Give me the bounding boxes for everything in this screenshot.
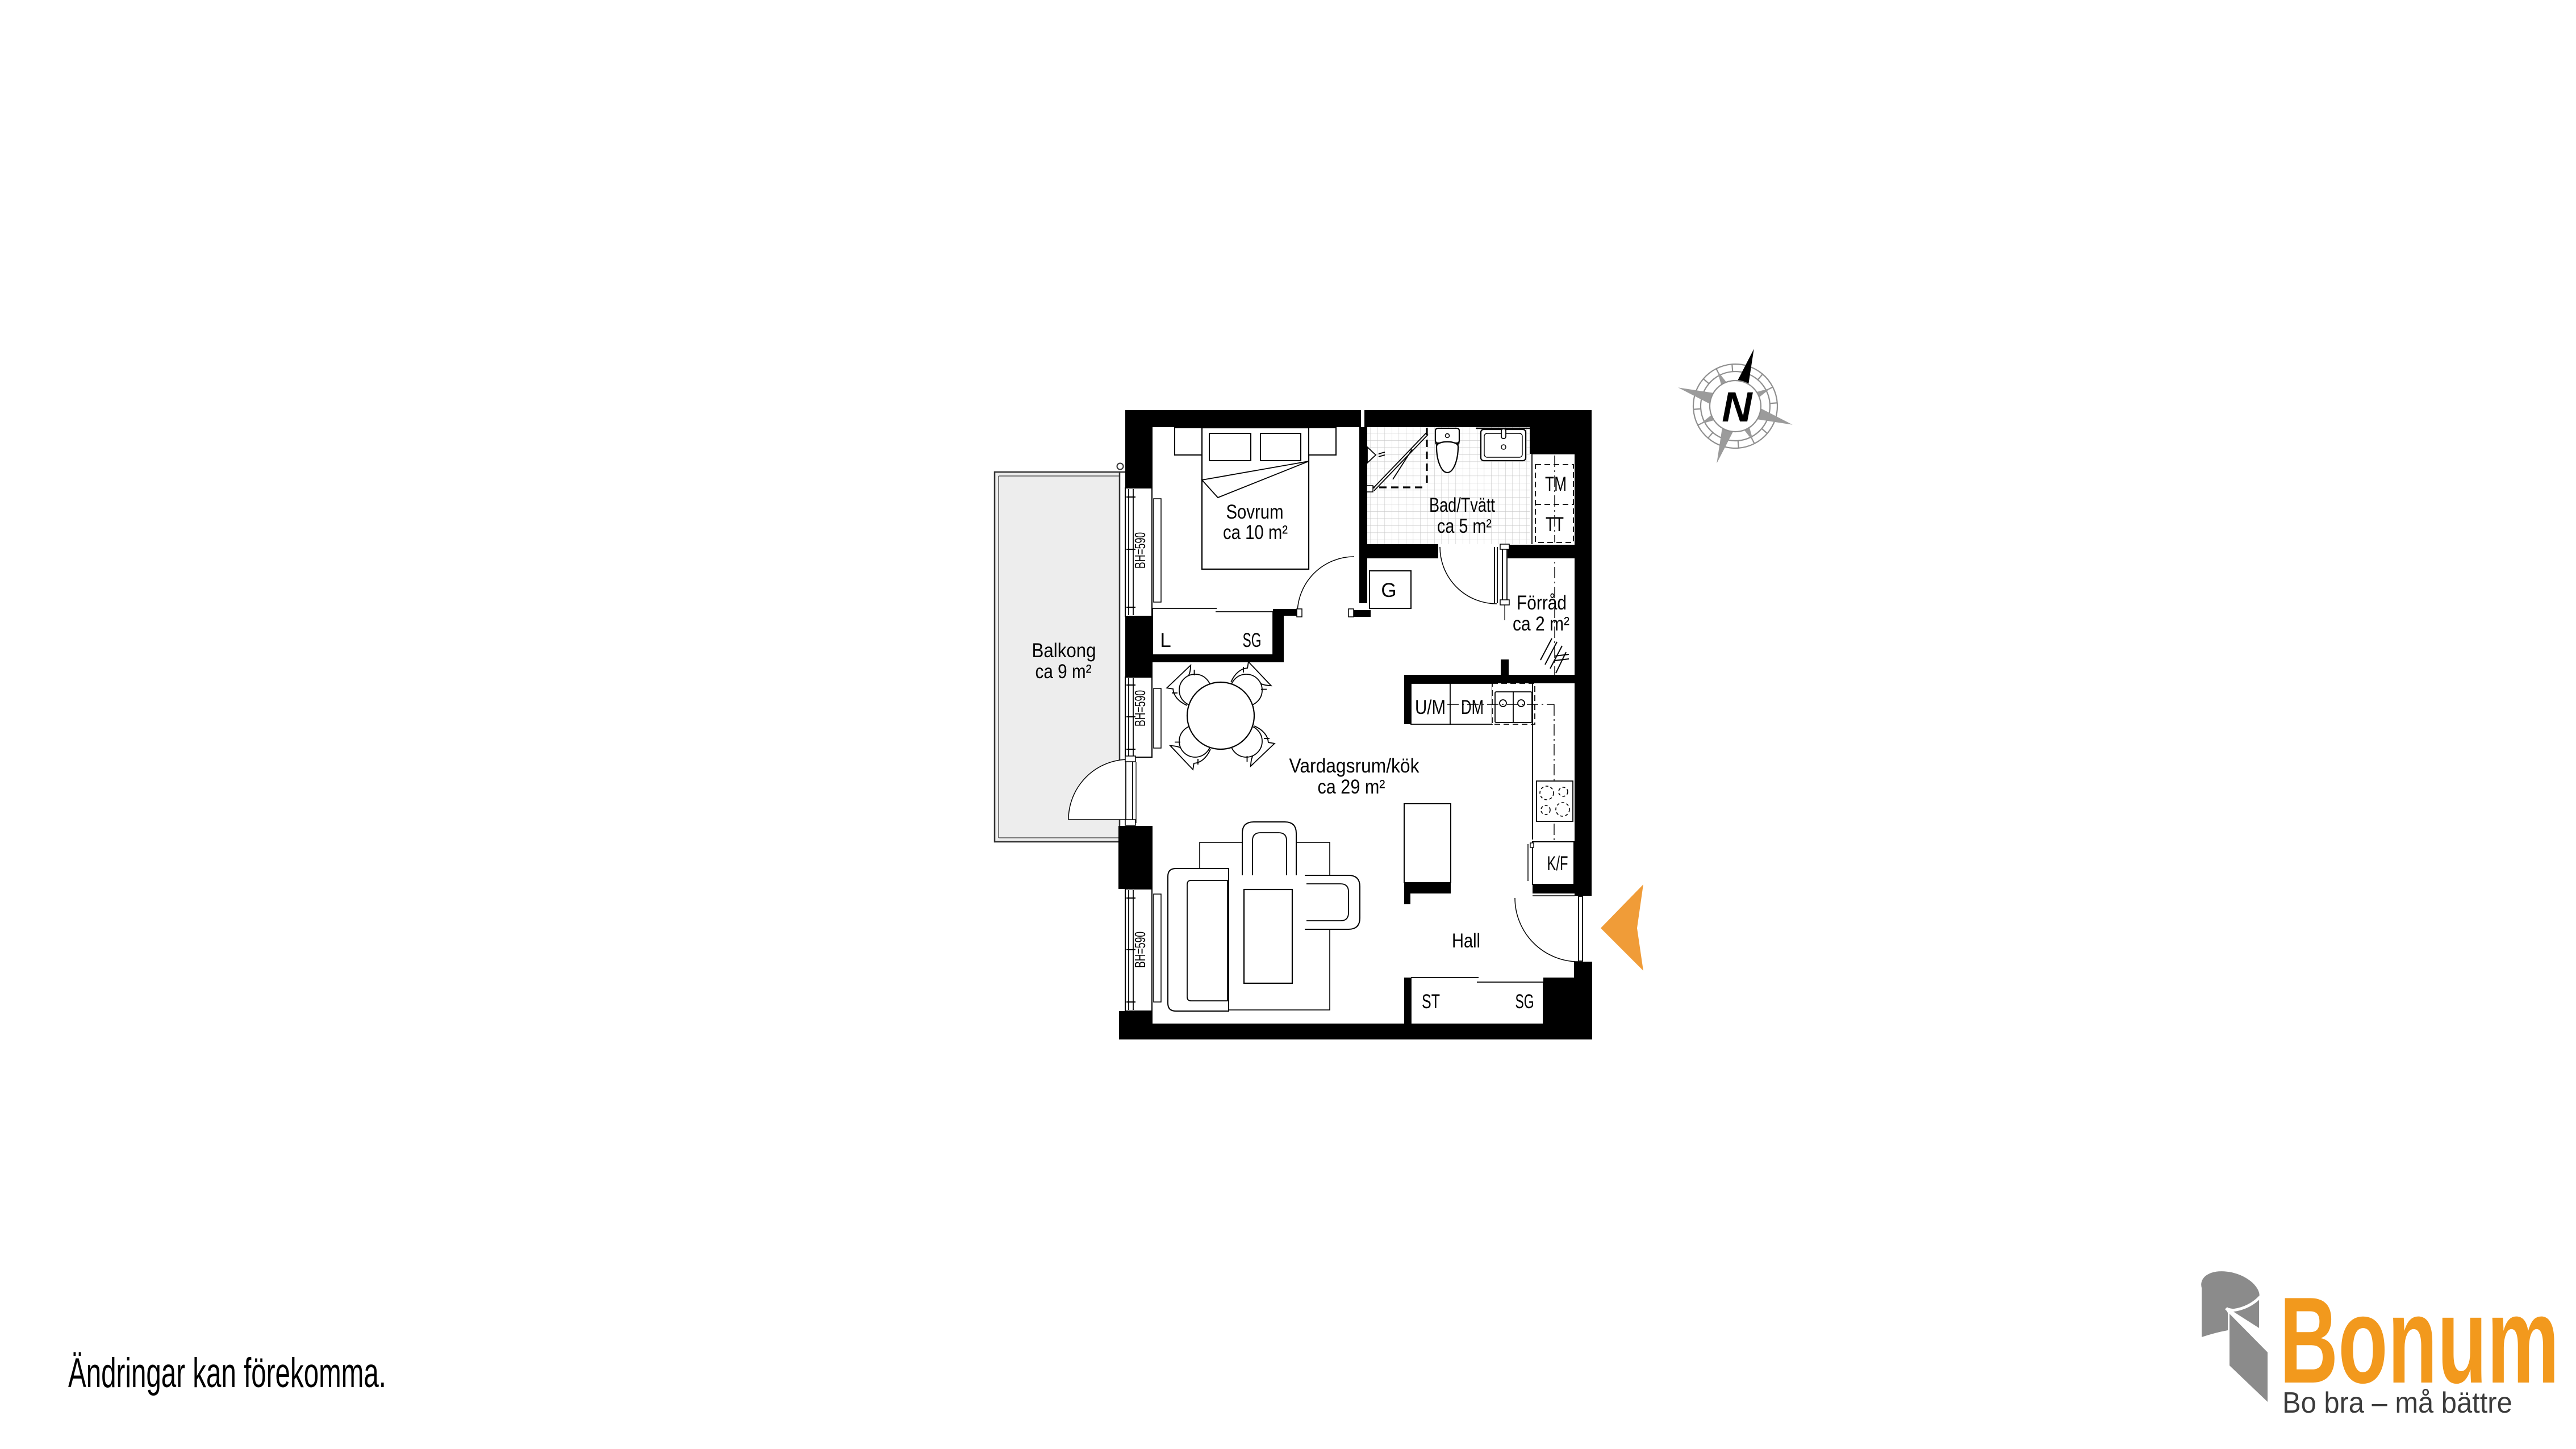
svg-text:BH=590: BH=590 (1132, 532, 1149, 569)
svg-text:Ändringar kan förekomma.: Ändringar kan förekomma. (68, 1350, 386, 1396)
svg-text:Vardagsrum/kök: Vardagsrum/kök (1289, 755, 1419, 777)
svg-text:Bo bra – må bättre: Bo bra – må bättre (2282, 1386, 2512, 1419)
svg-text:Förråd: Förråd (1517, 592, 1567, 614)
svg-text:Hall: Hall (1452, 930, 1480, 952)
svg-text:ca 2 m²: ca 2 m² (1513, 613, 1569, 635)
svg-text:K/F: K/F (1547, 853, 1568, 875)
svg-text:DM: DM (1461, 696, 1484, 719)
svg-text:TM: TM (1545, 473, 1567, 495)
svg-text:Balkong: Balkong (1032, 640, 1096, 662)
svg-text:Sovrum: Sovrum (1226, 501, 1284, 523)
svg-text:ca 29 m²: ca 29 m² (1318, 776, 1385, 798)
svg-text:ca 10 m²: ca 10 m² (1223, 521, 1288, 544)
svg-text:ca 9 m²: ca 9 m² (1036, 661, 1092, 683)
svg-text:L: L (1160, 629, 1171, 652)
svg-text:TT: TT (1546, 513, 1564, 536)
svg-text:SG: SG (1515, 991, 1534, 1013)
svg-text:Bad/Tvätt: Bad/Tvätt (1429, 494, 1495, 516)
svg-text:N: N (1722, 383, 1753, 431)
svg-text:SG: SG (1243, 629, 1262, 652)
svg-text:G: G (1381, 579, 1396, 602)
svg-text:ca 5 m²: ca 5 m² (1437, 515, 1492, 537)
svg-text:U/M: U/M (1415, 696, 1446, 719)
svg-text:ST: ST (1422, 991, 1440, 1013)
svg-text:BH=590: BH=590 (1132, 690, 1149, 726)
svg-text:BH=590: BH=590 (1132, 932, 1149, 968)
